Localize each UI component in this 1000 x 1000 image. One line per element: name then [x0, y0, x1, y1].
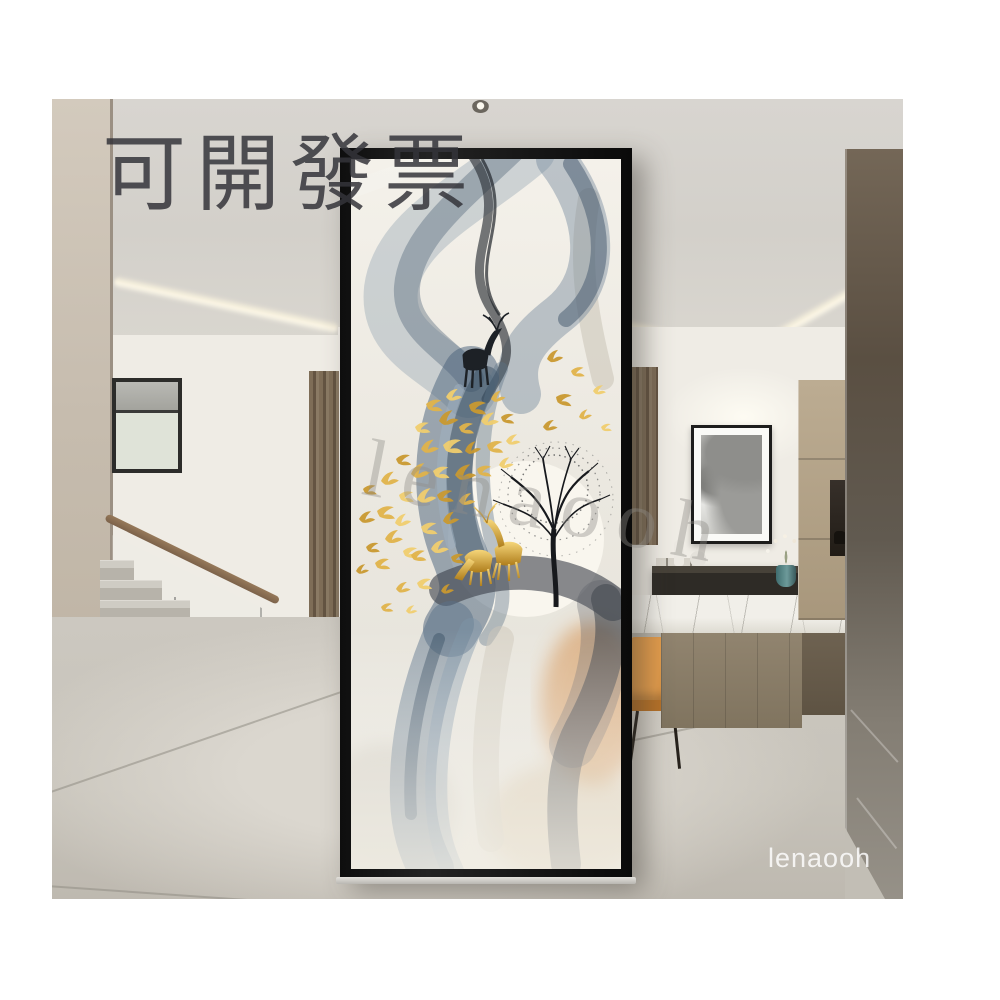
glass-frost: [351, 629, 621, 869]
partition-sill: [336, 877, 636, 884]
wood-slat-wall-left: [309, 371, 339, 653]
watermark-invoice: 可開發票: [102, 107, 478, 228]
window-shade: [116, 382, 178, 413]
watermark-corner: lenaooh: [768, 843, 871, 874]
stair-window: [112, 378, 182, 473]
flower-vase: [776, 565, 796, 587]
stair-step: [100, 580, 162, 601]
page: { "canvas": { "background": "#ffffff" },…: [0, 0, 1000, 1000]
stone-vein: [850, 709, 898, 762]
island-base: [661, 633, 802, 728]
watermark-invoice-text: 可開發票: [102, 129, 478, 222]
stone-vein: [856, 797, 897, 849]
stair-step: [100, 560, 134, 581]
stone-column: [845, 149, 903, 899]
watermark-corner-text: lenaooh: [768, 843, 871, 873]
interior-photo: 可開發票 lenaooh lenaooh: [52, 99, 903, 899]
window-foliage: [116, 410, 178, 469]
